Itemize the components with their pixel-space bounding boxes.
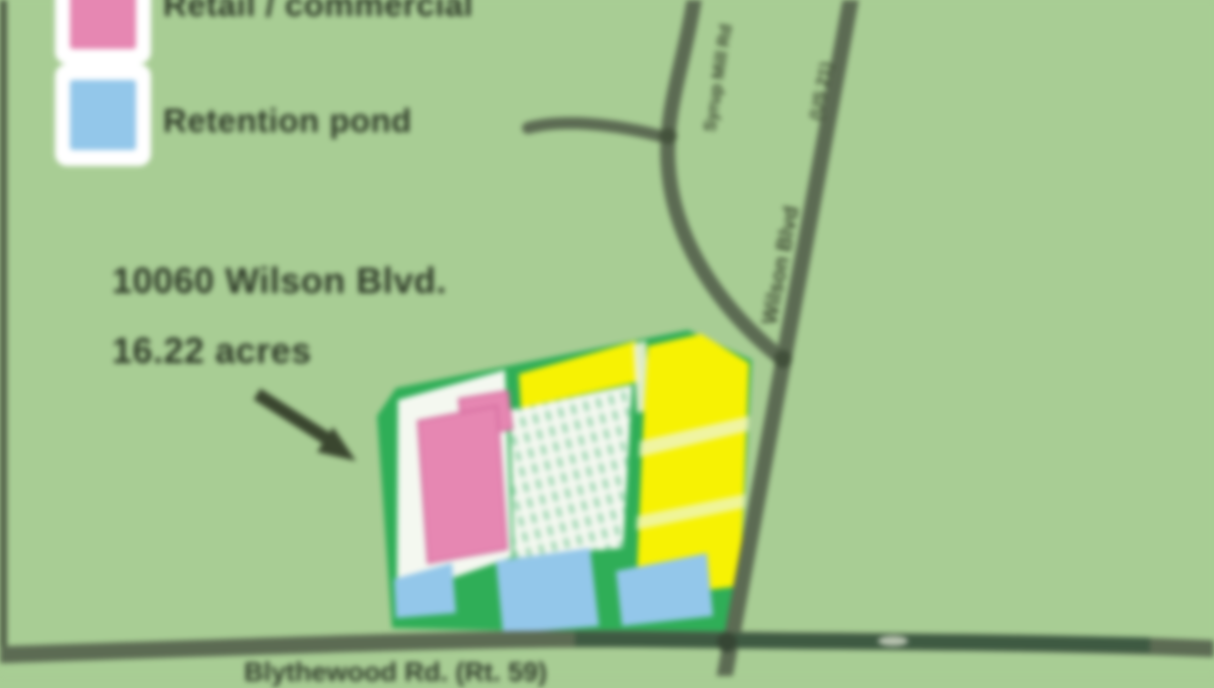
annotation-address: 10060 Wilson Blvd. bbox=[112, 260, 447, 302]
map-left-border bbox=[0, 0, 7, 650]
legend-swatch-pond bbox=[55, 64, 151, 166]
legend-swatch-retail bbox=[55, 0, 151, 64]
bottom-road-dark-segment bbox=[575, 639, 1150, 645]
legend-label-pond: Retention pond bbox=[163, 102, 412, 140]
legend-swatch-retail-color bbox=[70, 0, 136, 49]
site-map: Retail / commercial Retention pond 10060… bbox=[0, 0, 1214, 676]
annotation-acreage: 16.22 acres bbox=[112, 330, 312, 372]
anchor-building bbox=[418, 406, 507, 563]
bottom-road-label: Blythewood Rd. (Rt. 59) bbox=[244, 657, 547, 688]
legend-swatch-pond-color bbox=[70, 80, 136, 150]
curve-junction bbox=[774, 350, 792, 368]
bottom-junction bbox=[717, 632, 737, 652]
bottom-road-highlight bbox=[878, 636, 908, 646]
retention-pond-middle bbox=[496, 548, 599, 634]
parking-stalls bbox=[510, 385, 632, 558]
legend-label-retail: Retail / commercial bbox=[163, 0, 473, 24]
stub-junction bbox=[659, 128, 677, 144]
